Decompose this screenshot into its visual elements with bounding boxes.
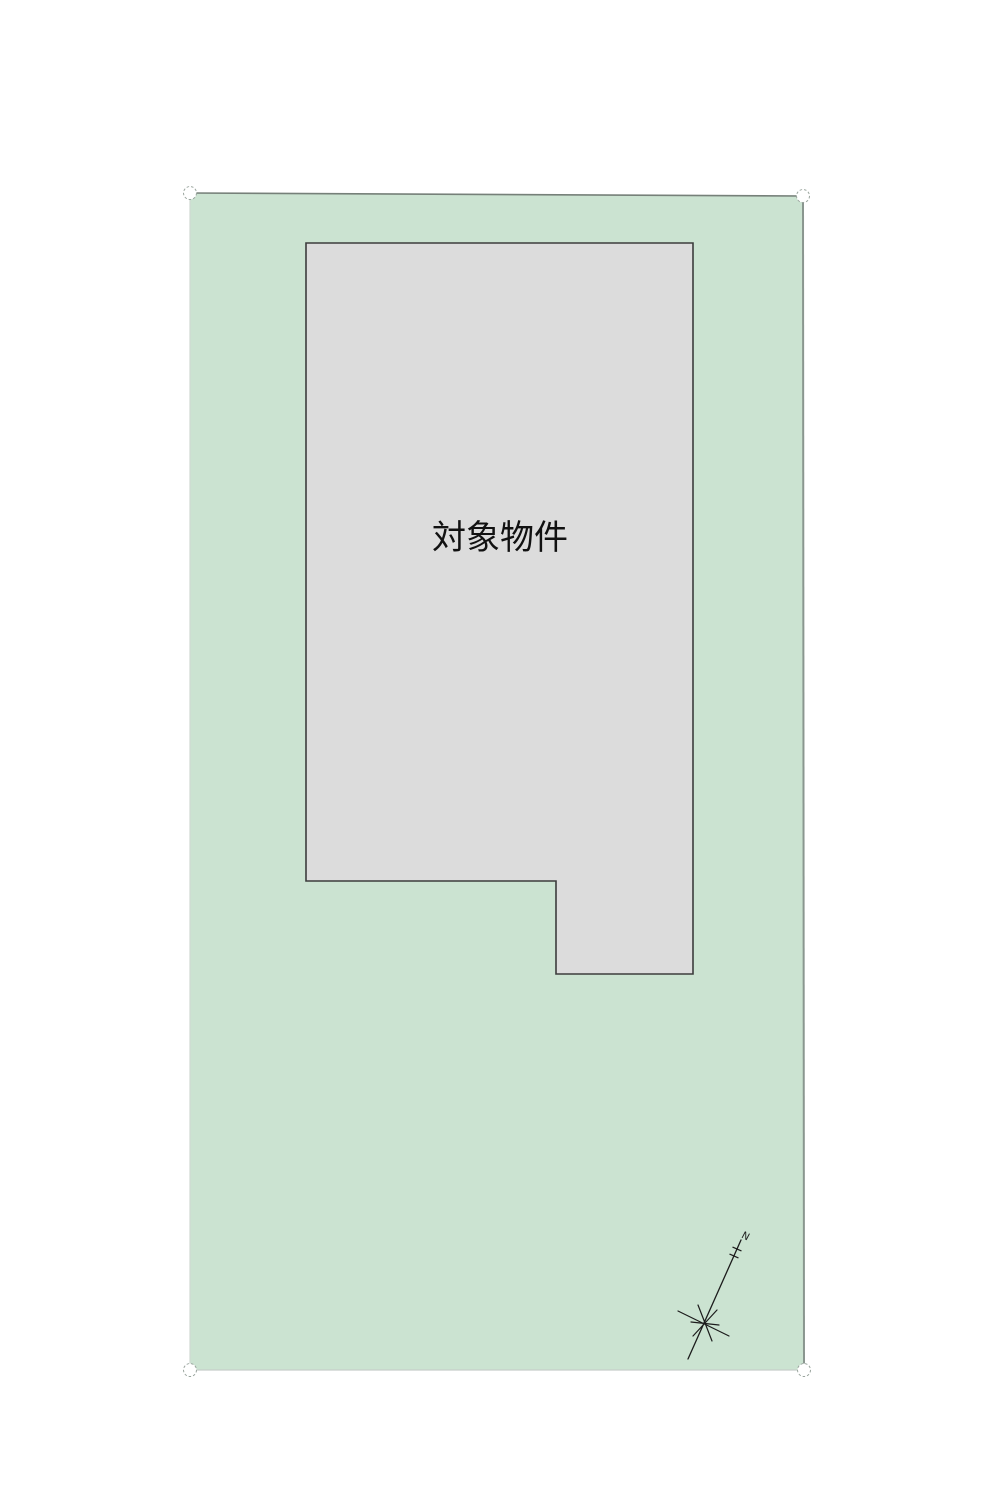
parcel-border-right — [803, 196, 804, 1370]
corner-marker-bottom-left — [184, 1364, 197, 1377]
plan-canvas: 対象物件 N — [0, 0, 1000, 1500]
corner-marker-top-left — [184, 187, 197, 200]
building-footprint — [306, 243, 693, 974]
building-label: 対象物件 — [432, 518, 568, 558]
site-plan: 対象物件 N — [0, 0, 1000, 1500]
corner-marker-bottom-right — [798, 1364, 811, 1377]
corner-marker-top-right — [797, 190, 810, 203]
